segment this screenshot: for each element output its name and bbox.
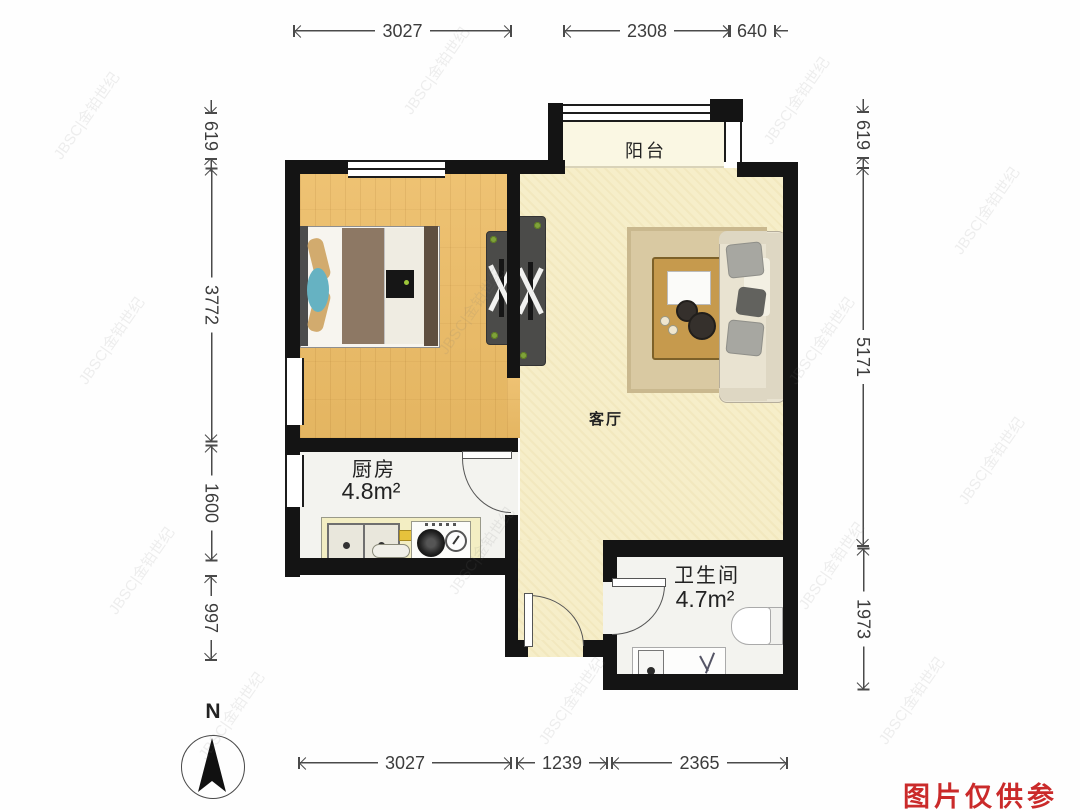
dimension-label: 3027	[382, 20, 422, 42]
sofa-cushion	[725, 319, 764, 357]
burner-icon	[417, 529, 445, 557]
dimension-right-619: 619	[852, 99, 874, 175]
watermark: JBSC|金铂世纪	[533, 653, 609, 749]
dimension-left-619: 619	[200, 100, 222, 176]
right-wall	[783, 162, 798, 688]
bathroom-area-label: 4.7m²	[676, 586, 735, 613]
bathroom-door-leaf	[612, 578, 666, 587]
watermark: JBSC|金铂世纪	[873, 653, 949, 749]
plant-icon	[491, 332, 498, 339]
sofa-back	[766, 233, 783, 399]
entry-door-leaf	[524, 593, 533, 647]
teacup	[668, 325, 678, 335]
balcony-threshold	[563, 166, 724, 168]
sofa-pillow	[735, 286, 767, 318]
watermark: JBSC|金铂世纪	[948, 163, 1024, 259]
wall-segment	[285, 160, 300, 358]
bed-blanket	[342, 228, 384, 344]
bathroom-south-wall	[603, 674, 798, 690]
dimension-right-1973: 1973	[853, 548, 875, 691]
bathroom-label: 卫生间	[674, 559, 740, 588]
living-room-label: 客厅	[589, 408, 623, 429]
drain-icon	[343, 542, 350, 549]
plant-icon	[490, 236, 497, 243]
kitchen-south-wall	[285, 558, 510, 575]
kitchen-west-window	[285, 455, 304, 507]
kitchen-area-label: 4.8m²	[342, 478, 401, 505]
dimension-bottom-3027: 3027	[298, 752, 512, 774]
gauge-icon	[445, 530, 467, 552]
bedside-cushion	[307, 268, 329, 312]
dimension-left-1600: 1600	[201, 445, 223, 562]
dimension-label: 1973	[853, 599, 875, 639]
cabinet-bar	[528, 262, 533, 320]
bedroom-west-window	[285, 358, 304, 425]
dimension-label: 1239	[542, 752, 582, 774]
dimension-label: 3027	[385, 752, 425, 774]
dimension-top-2308: 2308	[563, 20, 731, 42]
drain-rack	[372, 544, 410, 558]
bed-bench	[424, 226, 438, 346]
watermark: JBSC|金铂世纪	[953, 413, 1029, 509]
balcony-side-window	[724, 122, 742, 162]
toilet	[731, 607, 771, 645]
north-arrow-icon	[197, 738, 227, 794]
watermark: JBSC|金铂世纪	[48, 68, 124, 164]
dimension-label: 640	[737, 20, 767, 42]
balcony-right-pillar	[710, 99, 743, 122]
bathroom-west-wall	[603, 540, 617, 582]
dimension-bottom-1239: 1239	[516, 752, 608, 774]
dimension-label: 619	[852, 120, 874, 150]
dimension-label: 619	[200, 121, 222, 151]
floor-plan: 阳台 客厅 厨房 4.8m² 卫生间 4.7m² 3027 2308 640 3…	[0, 0, 1080, 810]
wall-segment	[445, 160, 565, 174]
dimension-label: 5171	[852, 337, 874, 377]
plant-icon	[534, 222, 541, 229]
watermark: JBSC|金铂世纪	[103, 523, 179, 619]
bedroom-window	[348, 160, 445, 178]
dimension-top-640: 640	[716, 20, 794, 42]
disclaimer-text: 图片仅供参考	[903, 775, 1080, 810]
stove	[411, 521, 471, 561]
balcony-left-pillar	[548, 103, 563, 174]
bedroom-doorway	[507, 378, 520, 438]
dimension-top-3027: 3027	[293, 20, 512, 42]
watermark: JBSC|金铂世纪	[73, 293, 149, 389]
wall-segment	[285, 160, 348, 174]
watermark: JBSC|金铂世纪	[758, 53, 834, 149]
dimension-bottom-2365: 2365	[611, 752, 788, 774]
gauge-needle	[452, 535, 459, 544]
sink-basin	[327, 523, 366, 560]
tv-panel	[386, 270, 414, 298]
sofa-cushion	[725, 241, 764, 279]
dimension-label: 1600	[201, 483, 223, 523]
indicator-dot	[404, 280, 409, 285]
stove-controls	[425, 523, 457, 526]
dimension-left-3772: 3772	[201, 168, 223, 443]
kitchen-door-leaf	[462, 451, 512, 459]
bathroom-north-wall	[603, 540, 783, 557]
dimension-right-5171: 5171	[852, 167, 874, 547]
kitchen-east-wall	[505, 515, 518, 657]
dimension-label: 2308	[627, 20, 667, 42]
teapot	[688, 312, 716, 340]
plant-icon	[520, 352, 527, 359]
balcony-label: 阳台	[625, 137, 667, 163]
dimension-label: 3772	[201, 285, 223, 325]
dimension-left-997: 997	[200, 575, 222, 661]
dimension-label: 2365	[679, 752, 719, 774]
cabinet-bar	[499, 259, 504, 317]
dimension-label: 997	[200, 603, 222, 633]
compass-north-label: N	[205, 700, 220, 724]
teacup	[660, 316, 670, 326]
bedroom-partition-wall	[507, 174, 520, 378]
balcony-window	[563, 104, 710, 122]
bedroom-south-wall	[285, 438, 518, 452]
sofa-armrest	[719, 388, 767, 401]
